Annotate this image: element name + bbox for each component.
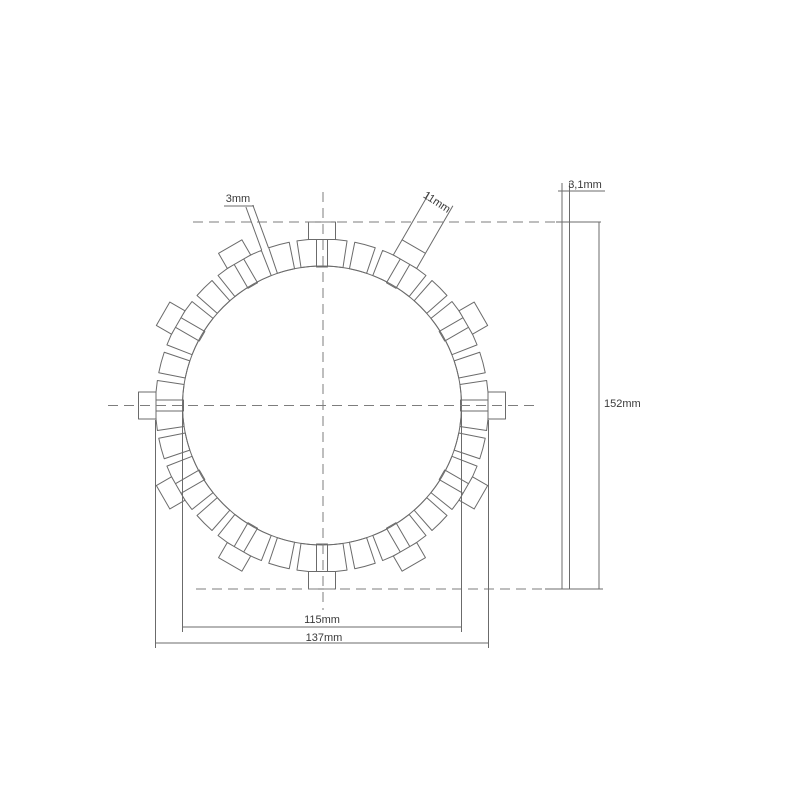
friction-pad	[325, 543, 347, 572]
clutch-plate-drawing: 3mm 11mm 3,1mm 152mm 115mm 137mm	[0, 0, 800, 800]
plate-thickness-label: 3,1mm	[568, 179, 602, 191]
friction-pad	[414, 498, 447, 531]
friction-pad	[349, 538, 375, 569]
inner-diameter-extension-lines	[183, 410, 462, 632]
friction-pad	[460, 380, 489, 402]
tab-stem	[317, 544, 328, 573]
friction-pad	[414, 281, 447, 314]
friction-pad	[159, 352, 190, 378]
friction-pad	[460, 409, 489, 431]
friction-pad	[197, 281, 230, 314]
friction-pad	[297, 543, 319, 572]
friction-pad	[454, 352, 485, 378]
tab-lug	[309, 222, 336, 240]
friction-pad	[297, 239, 319, 268]
friction-diameter-label: 137mm	[306, 632, 343, 644]
pad-gap-label: 3mm	[226, 193, 250, 205]
friction-pad	[269, 242, 295, 273]
tab-stem	[317, 238, 328, 267]
friction-pad	[156, 409, 185, 431]
pad-gap-leader-lines	[246, 205, 269, 250]
friction-pad	[156, 380, 185, 402]
friction-pad	[454, 433, 485, 459]
friction-pad	[197, 498, 230, 531]
overall-diameter-label: 152mm	[604, 398, 641, 410]
technical-drawing-page: 3mm 11mm 3,1mm 152mm 115mm 137mm	[0, 0, 800, 800]
side-view-strip	[562, 222, 570, 589]
friction-pad	[159, 433, 190, 459]
tab-lug	[309, 572, 336, 590]
friction-pad	[269, 538, 295, 569]
friction-pad	[325, 239, 347, 268]
friction-pad	[349, 242, 375, 273]
inner-diameter-label: 115mm	[304, 614, 340, 626]
tab-width-label: 11mm	[421, 189, 452, 215]
